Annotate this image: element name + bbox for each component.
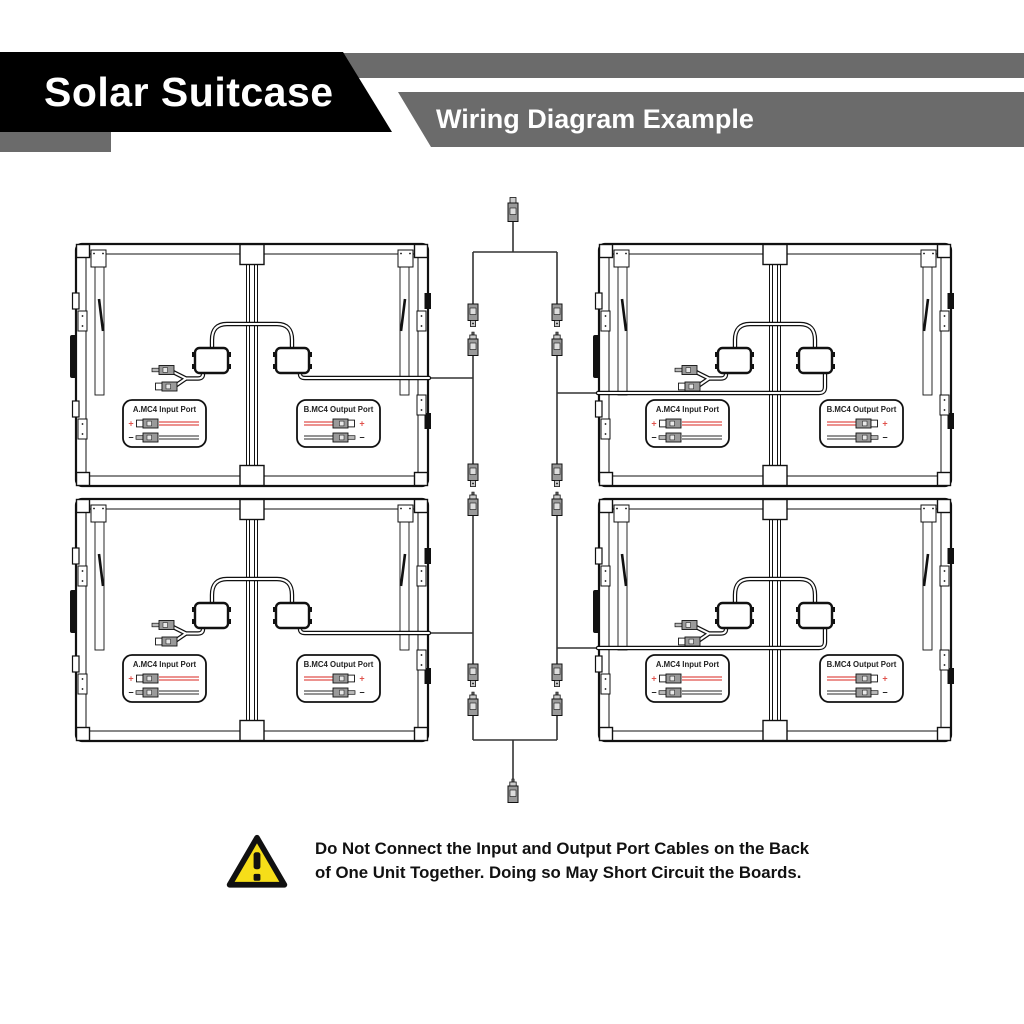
mc4-connector-male-icon (468, 692, 478, 716)
unit-bottom-right: A.MC4 Input Port+−B.MC4 Output Port+− (598, 498, 952, 742)
junction-box-output (273, 603, 312, 628)
port-label: B.MC4 Output Port (304, 660, 374, 669)
port-label: A.MC4 Input Port (656, 660, 720, 669)
junction-box-input (715, 603, 754, 628)
mc4-connector-female-icon (660, 674, 682, 683)
minus-sign: − (359, 433, 364, 443)
port-label: B.MC4 Output Port (827, 405, 897, 414)
port-label: B.MC4 Output Port (827, 660, 897, 669)
minus-sign: − (651, 433, 656, 443)
junction-box-output (796, 348, 835, 373)
suitcase-frame (70, 499, 431, 741)
mc4-connector-female-icon (156, 382, 178, 391)
mc4-connector-female-icon (468, 464, 478, 487)
corner-bracket (938, 728, 951, 741)
exclamation-dot (254, 874, 261, 881)
mc4-connector-female-icon (552, 304, 562, 327)
port-label: A.MC4 Input Port (656, 405, 720, 414)
mc4-connector-female-icon (333, 674, 355, 683)
unit-top-left: A.MC4 Input Port+−B.MC4 Output Port+− (75, 243, 429, 487)
minus-sign: − (882, 433, 887, 443)
port-label: A.MC4 Input Port (133, 660, 197, 669)
carry-handle (70, 590, 77, 633)
harness-cables (429, 221, 598, 780)
warning-text: Do Not Connect the Input and Output Port… (315, 837, 809, 884)
plus-sign: + (359, 674, 364, 684)
exclamation-bar (254, 852, 261, 869)
corner-bracket (77, 500, 90, 513)
corner-bracket (600, 245, 613, 258)
plus-sign: + (882, 674, 887, 684)
corner-bracket (600, 473, 613, 486)
input-port-label-box: A.MC4 Input Port+− (646, 400, 729, 447)
corner-bracket (415, 728, 428, 741)
corner-bracket (415, 473, 428, 486)
suitcase-frame (593, 499, 954, 741)
carry-handle (70, 335, 77, 378)
input-port-label-box: A.MC4 Input Port+− (123, 655, 206, 702)
plus-sign: + (128, 419, 133, 429)
mc4-connector-female-icon (679, 382, 701, 391)
output-port-label-box: B.MC4 Output Port+− (297, 655, 380, 702)
plus-sign: + (651, 674, 656, 684)
plus-sign: + (359, 419, 364, 429)
output-port-label-box: B.MC4 Output Port+− (820, 400, 903, 447)
mc4-connector-female-icon (679, 637, 701, 646)
carry-handle (593, 590, 600, 633)
mc4-connector-female-icon (156, 637, 178, 646)
warning-line-1: Do Not Connect the Input and Output Port… (315, 837, 809, 861)
corner-bracket (77, 728, 90, 741)
unit-bottom-left: A.MC4 Input Port+−B.MC4 Output Port+− (75, 498, 429, 742)
suitcase-frame (593, 244, 954, 486)
junction-box-input (192, 603, 231, 628)
mc4-connector-female-icon (137, 674, 159, 683)
mc4-connector-female-icon (468, 304, 478, 327)
input-port-label-box: A.MC4 Input Port+− (646, 655, 729, 702)
corner-bracket (77, 245, 90, 258)
minus-sign: − (651, 688, 656, 698)
warning-note: Do Not Connect the Input and Output Port… (226, 833, 809, 889)
unit-top-right: A.MC4 Input Port+−B.MC4 Output Port+− (598, 243, 952, 487)
minus-sign: − (128, 688, 133, 698)
harness-top-plug-icon (508, 198, 518, 222)
junction-box-output (796, 603, 835, 628)
minus-sign: − (128, 433, 133, 443)
corner-bracket (938, 245, 951, 258)
output-port-label-box: B.MC4 Output Port+− (820, 655, 903, 702)
corner-bracket (938, 473, 951, 486)
mc4-connector-male-icon (508, 779, 518, 803)
mc4-connector-male-icon (552, 692, 562, 716)
carry-handle (593, 335, 600, 378)
mc4-connector-female-icon (660, 419, 682, 428)
corner-bracket (600, 500, 613, 513)
corner-bracket (938, 500, 951, 513)
port-label: B.MC4 Output Port (304, 405, 374, 414)
plus-sign: + (882, 419, 887, 429)
mc4-connector-female-icon (468, 664, 478, 687)
junction-box-input (192, 348, 231, 373)
warning-triangle-icon (226, 833, 288, 889)
junction-box-output (273, 348, 312, 373)
minus-sign: − (882, 688, 887, 698)
mc4-connector-female-icon (333, 419, 355, 428)
plus-sign: + (128, 674, 133, 684)
suitcase-frame (70, 244, 431, 486)
mc4-connector-female-icon (552, 664, 562, 687)
corner-bracket (77, 473, 90, 486)
mc4-connector-female-icon (856, 674, 878, 683)
corner-bracket (415, 245, 428, 258)
corner-bracket (600, 728, 613, 741)
output-port-label-box: B.MC4 Output Port+− (297, 400, 380, 447)
mc4-connector-male-icon (552, 332, 562, 356)
input-port-label-box: A.MC4 Input Port+− (123, 400, 206, 447)
mc4-connector-male-icon (552, 492, 562, 516)
warning-line-2: of One Unit Together. Doing so May Short… (315, 861, 809, 885)
mc4-connector-male-icon (468, 332, 478, 356)
plus-sign: + (651, 419, 656, 429)
corner-bracket (415, 500, 428, 513)
port-label: A.MC4 Input Port (133, 405, 197, 414)
minus-sign: − (359, 688, 364, 698)
mc4-connector-male-icon (468, 492, 478, 516)
junction-box-input (715, 348, 754, 373)
mc4-connector-female-icon (552, 464, 562, 487)
mc4-connector-female-icon (137, 419, 159, 428)
mc4-connector-female-icon (856, 419, 878, 428)
